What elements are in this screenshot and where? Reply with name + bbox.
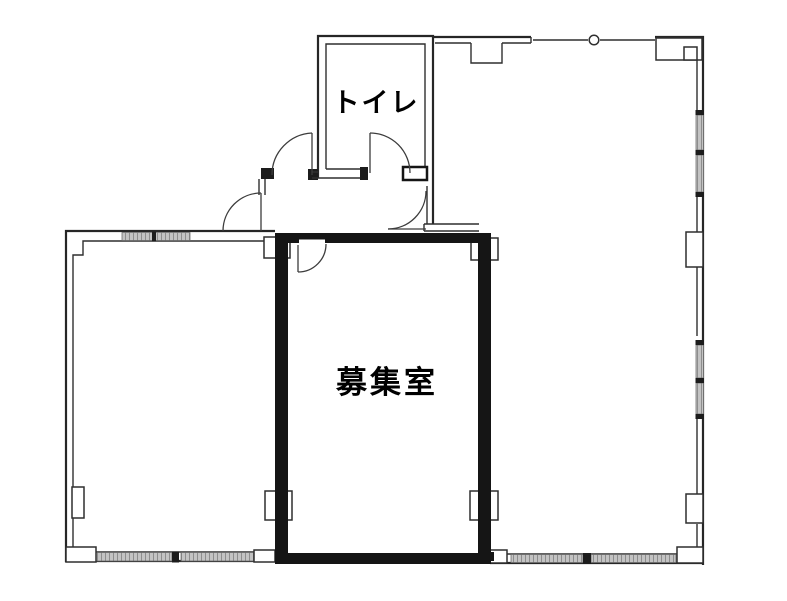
door-jamb xyxy=(403,167,427,180)
wall-inner xyxy=(73,241,275,547)
floor-plan: トイレ 募集室 xyxy=(0,0,787,601)
wall-thick-left xyxy=(275,233,288,564)
room-label-vacant: 募集室 xyxy=(335,365,438,400)
room-large xyxy=(433,35,704,565)
wall-inner xyxy=(424,224,479,231)
room-label-toilet: トイレ xyxy=(333,88,420,118)
window-mullion xyxy=(172,552,179,563)
door-swing-arc xyxy=(223,193,261,231)
wall-thick-bottom xyxy=(275,553,491,564)
wall-outline xyxy=(318,36,433,224)
window-mullion xyxy=(583,553,591,564)
pilaster xyxy=(471,43,502,63)
column-blocks xyxy=(264,237,507,563)
window-cap xyxy=(696,192,705,197)
corner-block xyxy=(254,550,275,562)
window-mullion xyxy=(696,378,705,383)
pilaster xyxy=(72,487,84,518)
vent-circle xyxy=(589,35,599,45)
pilaster xyxy=(686,232,703,267)
window-band xyxy=(696,383,704,414)
door-threshold xyxy=(299,240,325,244)
window-mullion xyxy=(152,232,156,242)
window-cap xyxy=(696,110,705,115)
floor-plan-svg: トイレ 募集室 xyxy=(0,0,787,601)
window-cap xyxy=(696,414,705,419)
window-band xyxy=(696,345,704,378)
door-jamb xyxy=(360,167,368,180)
room-toilet: トイレ xyxy=(308,36,433,224)
pilaster xyxy=(686,494,703,523)
wall-inner xyxy=(318,169,362,178)
wall-thick-right xyxy=(478,233,491,564)
door-swing-arc xyxy=(272,133,312,175)
window-cap xyxy=(696,340,705,345)
window-mullion xyxy=(696,150,705,155)
wall-outline xyxy=(66,231,275,561)
corridor xyxy=(259,168,479,231)
door-swing-arc xyxy=(388,191,426,229)
corner-block xyxy=(677,547,703,563)
corner-step xyxy=(684,47,697,60)
window-band xyxy=(696,155,704,192)
door-swing-arc xyxy=(298,244,326,272)
door-swings xyxy=(223,133,426,272)
window-band xyxy=(591,555,676,563)
door-jamb xyxy=(490,552,494,561)
window-band xyxy=(696,115,704,150)
corner-block xyxy=(66,547,96,562)
window-band xyxy=(96,553,172,562)
room-left xyxy=(66,231,275,563)
window-band xyxy=(181,553,255,562)
window-band xyxy=(511,555,583,563)
room-labels: 募集室 xyxy=(335,365,438,400)
